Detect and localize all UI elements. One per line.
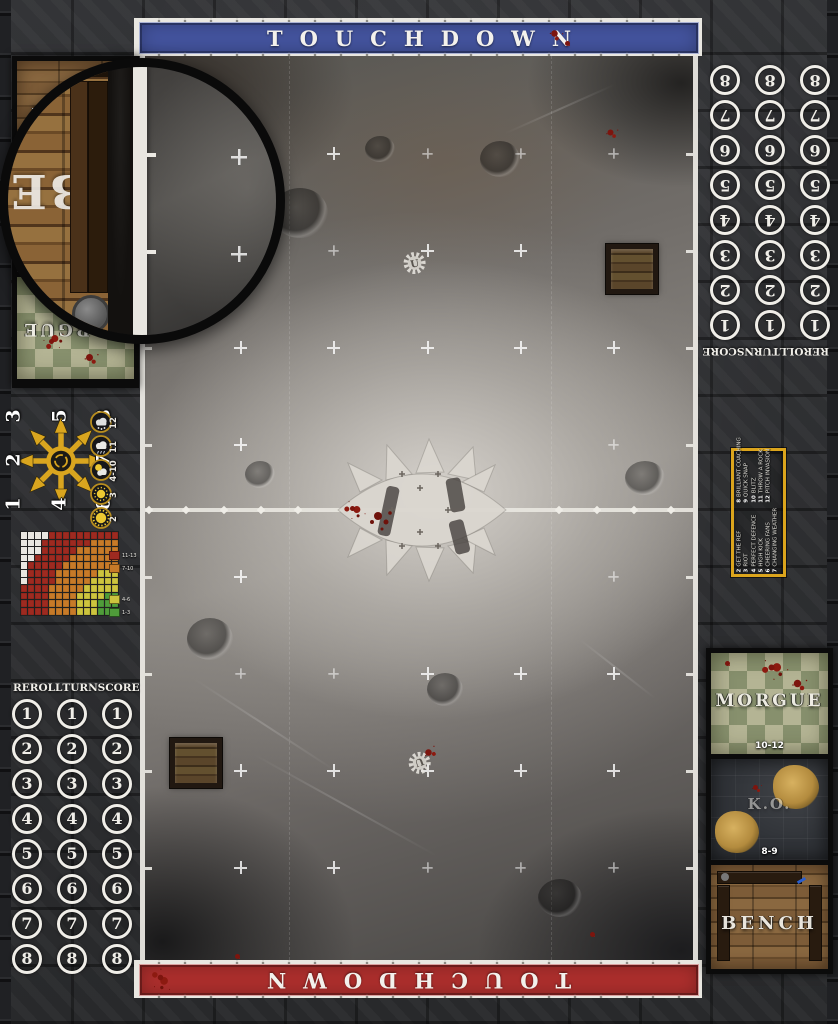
range-cell <box>84 593 90 600</box>
range-legend-chip <box>109 551 120 560</box>
range-cell <box>70 540 76 547</box>
sideline-tick <box>145 673 152 676</box>
range-cell <box>77 555 83 562</box>
range-cell <box>63 593 69 600</box>
range-cell <box>42 600 48 607</box>
kickoff-event: PERFECT DEFENCE <box>751 514 757 566</box>
spiked-ball-logo <box>332 430 512 590</box>
crater <box>365 136 395 162</box>
range-cell <box>35 562 41 569</box>
bench-seat <box>717 871 802 884</box>
range-cell <box>84 600 90 607</box>
range-cell <box>105 540 111 547</box>
track-header-word: TURN <box>62 682 97 694</box>
track-cell: 3 <box>800 240 830 270</box>
range-cell <box>49 608 55 615</box>
range-cell <box>70 585 76 592</box>
sideline-tick <box>686 673 693 676</box>
range-cell <box>42 570 48 577</box>
range-cell <box>35 600 41 607</box>
range-cell <box>49 570 55 577</box>
grid-cross <box>328 668 338 678</box>
range-cell <box>91 570 97 577</box>
range-legend-label: 7-10 <box>122 566 133 572</box>
range-cell <box>63 532 69 539</box>
kickoff-event: PITCH INVASION <box>765 448 771 492</box>
range-legend-item: 7-10 <box>109 564 137 573</box>
crater <box>625 461 665 495</box>
track-cell: 7 <box>755 100 785 130</box>
range-cell <box>21 593 27 600</box>
kickoff-roll: 6 <box>765 568 771 572</box>
sideline-tick <box>686 347 693 350</box>
track-row: 222 <box>710 275 830 305</box>
range-cell <box>49 593 55 600</box>
touchdown-label-bottom: TOUCHDOWN <box>250 968 588 993</box>
range-cell <box>28 578 34 585</box>
magnified-sideline <box>133 67 147 335</box>
range-cell <box>56 600 62 607</box>
track-row: 555 <box>12 839 132 869</box>
range-legend-label: 11-13 <box>122 553 137 559</box>
grid-cross <box>231 246 247 262</box>
range-cell <box>112 540 118 547</box>
range-cell <box>77 562 83 569</box>
ko-range: 8-9 <box>711 847 828 857</box>
track-cell: 4 <box>710 205 740 235</box>
track-cell: 3 <box>755 240 785 270</box>
kickoff-event: RIOT <box>743 553 749 566</box>
track-cell: 2 <box>800 275 830 305</box>
range-cell <box>98 547 104 554</box>
touchdown-banner-bottom: TOUCHDOWN <box>134 960 702 998</box>
range-cell <box>21 578 27 585</box>
grid-cross <box>234 570 247 583</box>
bench-zone: BENCH <box>711 865 828 969</box>
range-legend-label: 1-3 <box>122 610 130 616</box>
grid-cross <box>514 341 527 354</box>
range-cell <box>98 532 104 539</box>
grid-cross <box>514 764 527 777</box>
bench-plank <box>88 81 108 293</box>
track-cell: 3 <box>12 769 42 799</box>
range-cell <box>70 547 76 554</box>
kickoff-entry: 4PERFECT DEFENCE <box>751 507 758 572</box>
track-cell: 7 <box>800 100 830 130</box>
kickoff-event: BRILLIANT COACHING <box>736 437 742 497</box>
range-cell <box>91 532 97 539</box>
scatter-number: 1 <box>3 497 25 510</box>
range-cell <box>98 570 104 577</box>
kickoff-event: CHANGING WEATHER <box>772 507 778 566</box>
range-cell <box>49 555 55 562</box>
dugout-frame-edge <box>8 67 108 77</box>
round-token <box>72 295 110 333</box>
range-cell <box>77 578 83 585</box>
sideline-right <box>693 56 698 960</box>
range-cell <box>77 532 83 539</box>
kickoff-entry: 8BRILLIANT COACHING <box>736 437 743 503</box>
range-cell <box>84 578 90 585</box>
track-header-word: SCORE <box>98 682 140 694</box>
kickoff-event: THROW A ROCK <box>758 449 764 493</box>
track-cell: 3 <box>102 769 132 799</box>
kickoff-roll: 11 <box>758 495 764 503</box>
track-row: 222 <box>12 734 132 764</box>
kickoff-roll: 8 <box>736 498 742 502</box>
range-cell <box>49 578 55 585</box>
kickoff-entry: 9QUICK SNAP <box>743 437 750 503</box>
sideline-tick <box>686 770 693 773</box>
kickoff-event: BLITZ <box>751 477 757 493</box>
range-cell <box>91 555 97 562</box>
range-cell <box>42 532 48 539</box>
ko-zone: K.O. 8-9 <box>711 759 828 860</box>
range-legend-chip <box>109 595 120 604</box>
scatter-number: 2 <box>3 453 25 466</box>
grid-cross <box>514 667 527 680</box>
grid-cross <box>514 244 527 257</box>
track-cell: 8 <box>12 944 42 974</box>
track-cell: 6 <box>755 135 785 165</box>
morgue-label: MORGUE <box>711 691 828 711</box>
track-row: 333 <box>710 240 830 270</box>
range-cell <box>84 555 90 562</box>
range-cell <box>21 547 27 554</box>
range-cell <box>63 600 69 607</box>
range-cell <box>28 547 34 554</box>
range-cell <box>98 578 104 585</box>
grid-cross <box>422 862 432 872</box>
range-cell <box>98 600 104 607</box>
range-cell <box>63 578 69 585</box>
range-cell <box>56 562 62 569</box>
grid-cross <box>327 147 340 160</box>
range-cell <box>42 585 48 592</box>
kickoff-roll: 7 <box>772 568 778 572</box>
kickoff-column: 2GET THE REF3RIOT4PERFECT DEFENCE5HIGH K… <box>736 507 781 572</box>
range-cell <box>28 593 34 600</box>
track-header-word: TURN <box>744 345 779 357</box>
track-header-word: REROLL <box>780 345 829 357</box>
track-cell: 4 <box>755 205 785 235</box>
track-cell: 6 <box>57 874 87 904</box>
track-cell: 8 <box>57 944 87 974</box>
blood-splatter <box>48 338 54 344</box>
track-header-word: REROLL <box>13 682 62 694</box>
range-cell <box>35 540 41 547</box>
sideline-tick <box>145 770 152 773</box>
kickoff-roll: 12 <box>765 495 771 503</box>
grid-cross <box>607 764 620 777</box>
track-cell: 8 <box>102 944 132 974</box>
range-cell <box>77 547 83 554</box>
game-mat: TOUCHDOWN U U <box>0 0 838 1024</box>
track-cell: 3 <box>710 240 740 270</box>
range-cell <box>112 532 118 539</box>
kickoff-entry: 3RIOT <box>743 507 750 572</box>
grid-cross <box>515 862 525 872</box>
range-cell <box>84 570 90 577</box>
sideline-tick <box>686 153 693 156</box>
range-cell <box>70 593 76 600</box>
magnified-dugout-frame <box>108 67 133 335</box>
track-cell: 8 <box>710 65 740 95</box>
track-cell: 2 <box>57 734 87 764</box>
round-token <box>721 873 729 881</box>
crater <box>480 141 520 177</box>
range-cell <box>98 593 104 600</box>
scatter-number: 5 <box>49 409 71 422</box>
range-cell <box>42 540 48 547</box>
sideline-tick <box>145 576 152 579</box>
kickoff-roll: 3 <box>743 568 749 572</box>
range-cell <box>21 562 27 569</box>
kickoff-entry: 2GET THE REF <box>736 507 743 572</box>
track-row: 555 <box>710 170 830 200</box>
weather-table: 12114-1032 <box>90 411 134 531</box>
track-row: 777 <box>710 100 830 130</box>
blood-splatter <box>86 354 93 361</box>
sideline-tick <box>145 444 152 447</box>
crater <box>187 618 233 660</box>
track-cell: 1 <box>102 699 132 729</box>
range-cell <box>21 585 27 592</box>
range-cell <box>28 562 34 569</box>
crater <box>245 461 275 488</box>
track-cell: 5 <box>755 170 785 200</box>
range-cell <box>70 578 76 585</box>
range-cell <box>49 562 55 569</box>
range-cell <box>21 570 27 577</box>
range-cell <box>42 547 48 554</box>
range-cell <box>91 547 97 554</box>
kickoff-entry: 10BLITZ <box>751 437 758 503</box>
track-cell: 2 <box>710 275 740 305</box>
grid-cross <box>608 439 618 449</box>
range-cell <box>77 608 83 615</box>
range-cell <box>21 540 27 547</box>
range-cell <box>28 532 34 539</box>
track-cell: 6 <box>800 135 830 165</box>
track-cell: 6 <box>102 874 132 904</box>
range-cell <box>56 585 62 592</box>
track-cell: 1 <box>57 699 87 729</box>
pass-range-chart: 11-137-104-61-3 <box>20 531 119 616</box>
sideline-tick <box>147 250 156 254</box>
track-row: 444 <box>12 804 132 834</box>
scratch-mark <box>505 84 615 135</box>
sideline-tick <box>147 153 156 157</box>
range-cell <box>35 570 41 577</box>
track-cell: 7 <box>710 100 740 130</box>
range-cell <box>63 540 69 547</box>
range-cell <box>63 555 69 562</box>
blood-splatter <box>590 932 595 937</box>
range-cell <box>98 562 104 569</box>
range-legend-chip <box>109 608 120 617</box>
range-cell <box>63 570 69 577</box>
track-cell: 2 <box>755 275 785 305</box>
range-cell <box>84 547 90 554</box>
weather-row: 2 <box>90 507 134 531</box>
range-cell <box>28 600 34 607</box>
range-cell <box>84 562 90 569</box>
sideline-tick <box>145 867 152 870</box>
range-cell <box>49 600 55 607</box>
track-header: REROLLTURNSCORE <box>12 682 132 694</box>
grid-cross <box>234 341 247 354</box>
morgue-range: 10-12 <box>711 741 828 751</box>
track-cell: 7 <box>12 909 42 939</box>
range-cell <box>56 547 62 554</box>
range-cell <box>35 555 41 562</box>
track-header: REROLLTURNSCORE <box>710 345 830 357</box>
track-cell: 4 <box>57 804 87 834</box>
track-cell: 5 <box>710 170 740 200</box>
range-cell <box>91 562 97 569</box>
range-cell <box>56 532 62 539</box>
track-cell: 1 <box>755 310 785 340</box>
range-cell <box>70 532 76 539</box>
range-cell <box>77 540 83 547</box>
magnifier-circle: BE <box>0 58 285 344</box>
kickoff-table: 2GET THE REF3RIOT4PERFECT DEFENCE5HIGH K… <box>731 448 786 577</box>
ko-label: K.O. <box>711 795 828 813</box>
grid-cross <box>231 149 247 165</box>
kickoff-entry: 7CHANGING WEATHER <box>772 507 779 572</box>
range-cell <box>49 540 55 547</box>
kickoff-entry: 5HIGH KICK <box>758 507 765 572</box>
touchdown-banner-top: TOUCHDOWN <box>134 18 702 56</box>
range-cell <box>84 585 90 592</box>
kickoff-event: CHEERING FANS <box>765 522 771 567</box>
blood-splatter <box>157 974 164 981</box>
range-cell <box>42 608 48 615</box>
sideline-tick <box>686 576 693 579</box>
kickoff-entry: 11THROW A ROCK <box>758 437 765 503</box>
crater <box>427 673 463 706</box>
track-cell: 4 <box>12 804 42 834</box>
range-cell <box>84 540 90 547</box>
range-cell <box>35 608 41 615</box>
track-cell: 8 <box>755 65 785 95</box>
grid-cross <box>235 668 245 678</box>
range-cell <box>70 600 76 607</box>
touchdown-label-top: TOUCHDOWN <box>250 26 588 51</box>
range-legend-item: 1-3 <box>109 608 137 617</box>
range-cell <box>56 578 62 585</box>
track-cell: 7 <box>102 909 132 939</box>
sideline-tick <box>686 250 693 253</box>
track-cell: 4 <box>102 804 132 834</box>
range-cell <box>63 585 69 592</box>
sideline-tick <box>686 867 693 870</box>
kickoff-roll: 5 <box>758 568 764 572</box>
range-cell <box>28 540 34 547</box>
track-cell: 2 <box>12 734 42 764</box>
magnified-pitch <box>133 67 276 335</box>
range-cell <box>56 540 62 547</box>
grid-cross <box>608 571 618 581</box>
blood-splatter <box>235 954 240 959</box>
range-cell <box>91 578 97 585</box>
range-cell <box>35 532 41 539</box>
grid-cross <box>608 148 618 158</box>
range-cell <box>98 540 104 547</box>
range-cell <box>63 547 69 554</box>
blood-splatter <box>768 664 776 672</box>
grid-cross <box>234 861 247 874</box>
range-cell <box>77 600 83 607</box>
range-cell <box>35 578 41 585</box>
kickoff-event: QUICK SNAP <box>743 463 749 497</box>
kickoff-event: HIGH KICK <box>758 538 764 567</box>
range-cell <box>70 608 76 615</box>
grid-cross <box>327 861 340 874</box>
track-cell: 5 <box>800 170 830 200</box>
track-cell: 6 <box>12 874 42 904</box>
blood-splatter <box>565 41 570 46</box>
track-row: 666 <box>710 135 830 165</box>
track-row: 444 <box>710 205 830 235</box>
kickoff-roll: 2 <box>736 568 742 572</box>
range-cell <box>21 608 27 615</box>
scatter-number: 3 <box>3 409 25 422</box>
kickoff-entry: 6CHEERING FANS <box>765 507 772 572</box>
blood-splatter <box>794 680 802 688</box>
range-cell <box>91 600 97 607</box>
track-cell: 5 <box>102 839 132 869</box>
range-cell <box>70 562 76 569</box>
grid-cross <box>328 245 338 255</box>
turn-track-top: REROLLTURNSCORE111222333444555666777888 <box>710 60 830 357</box>
range-cell <box>49 585 55 592</box>
grid-cross <box>234 438 247 451</box>
track-cell: 6 <box>710 135 740 165</box>
bench-plank <box>70 81 88 293</box>
grid-cross <box>421 341 434 354</box>
range-cell <box>63 562 69 569</box>
range-cell <box>77 570 83 577</box>
range-cell <box>56 570 62 577</box>
blood-splatter <box>608 130 614 136</box>
track-row: 666 <box>12 874 132 904</box>
crater <box>538 879 582 917</box>
kickoff-roll: 9 <box>743 498 749 502</box>
range-cell <box>84 608 90 615</box>
kickoff-column: 8BRILLIANT COACHING9QUICK SNAP10BLITZ11T… <box>736 437 781 503</box>
track-header-word: SCORE <box>703 345 745 357</box>
touchdown-banner-top-inner: TOUCHDOWN <box>139 22 699 54</box>
grid-cross <box>234 764 247 777</box>
range-cell <box>35 585 41 592</box>
kickoff-entry: 12PITCH INVASION <box>765 437 772 503</box>
range-cell <box>105 532 111 539</box>
range-cell <box>21 555 27 562</box>
range-legend-label: 4-6 <box>122 597 130 603</box>
kickoff-roll: 4 <box>751 568 757 572</box>
range-cell <box>63 608 69 615</box>
track-row: 777 <box>12 909 132 939</box>
range-cell <box>56 608 62 615</box>
bench-label: BENCH <box>711 913 828 934</box>
kickoff-roll: 10 <box>751 495 757 503</box>
track-row: 111 <box>710 310 830 340</box>
range-cell <box>42 593 48 600</box>
range-legend-item: 11-13 <box>109 551 137 560</box>
sideline-tick <box>686 444 693 447</box>
